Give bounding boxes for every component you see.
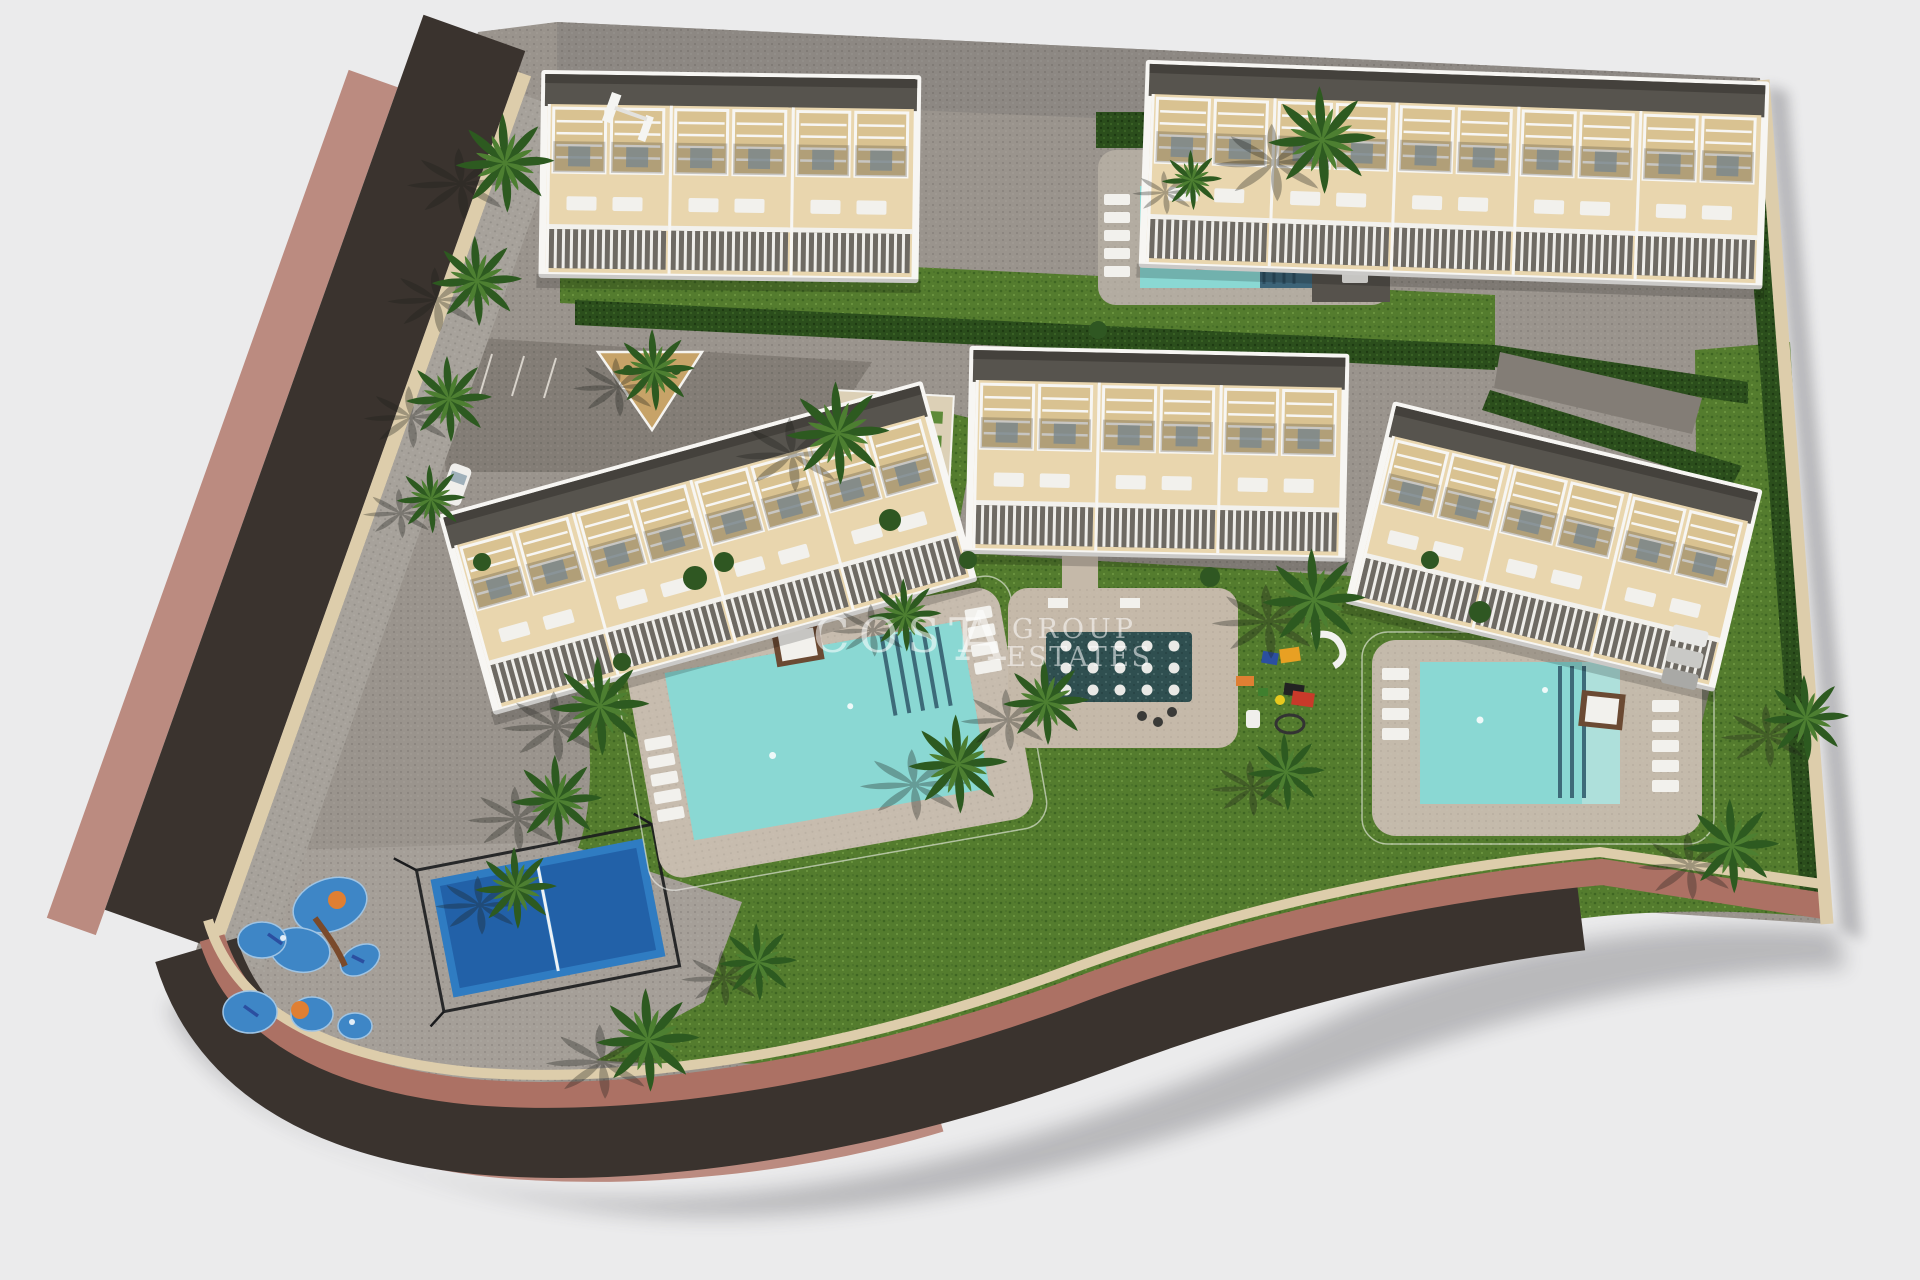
watermark-group: GROUP [1012, 614, 1137, 645]
block-north-west [536, 70, 923, 293]
watermark-monogram-a: A [955, 598, 1006, 677]
toy-car [1246, 710, 1260, 728]
site-plan-render: COST A GROUP ESTATES [0, 0, 1920, 1280]
daybed [1578, 690, 1626, 730]
site-plan-svg: COST A GROUP ESTATES [0, 0, 1920, 1280]
watermark-estates: ESTATES [1006, 642, 1152, 673]
block-north-east [1136, 60, 1771, 300]
block-mid-center [963, 346, 1351, 572]
